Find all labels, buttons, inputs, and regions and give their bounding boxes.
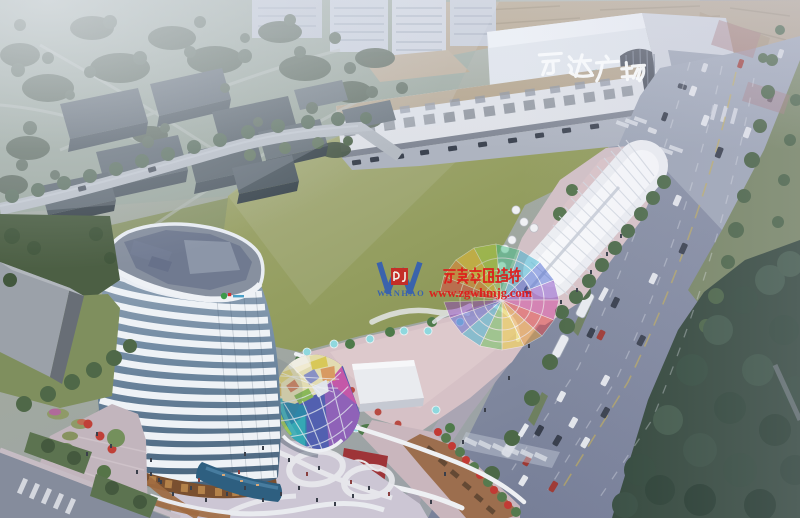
svg-text:www.zgwhmjg.com: www.zgwhmjg.com: [429, 286, 532, 300]
svg-text:WANHAO: WANHAO: [377, 288, 425, 298]
